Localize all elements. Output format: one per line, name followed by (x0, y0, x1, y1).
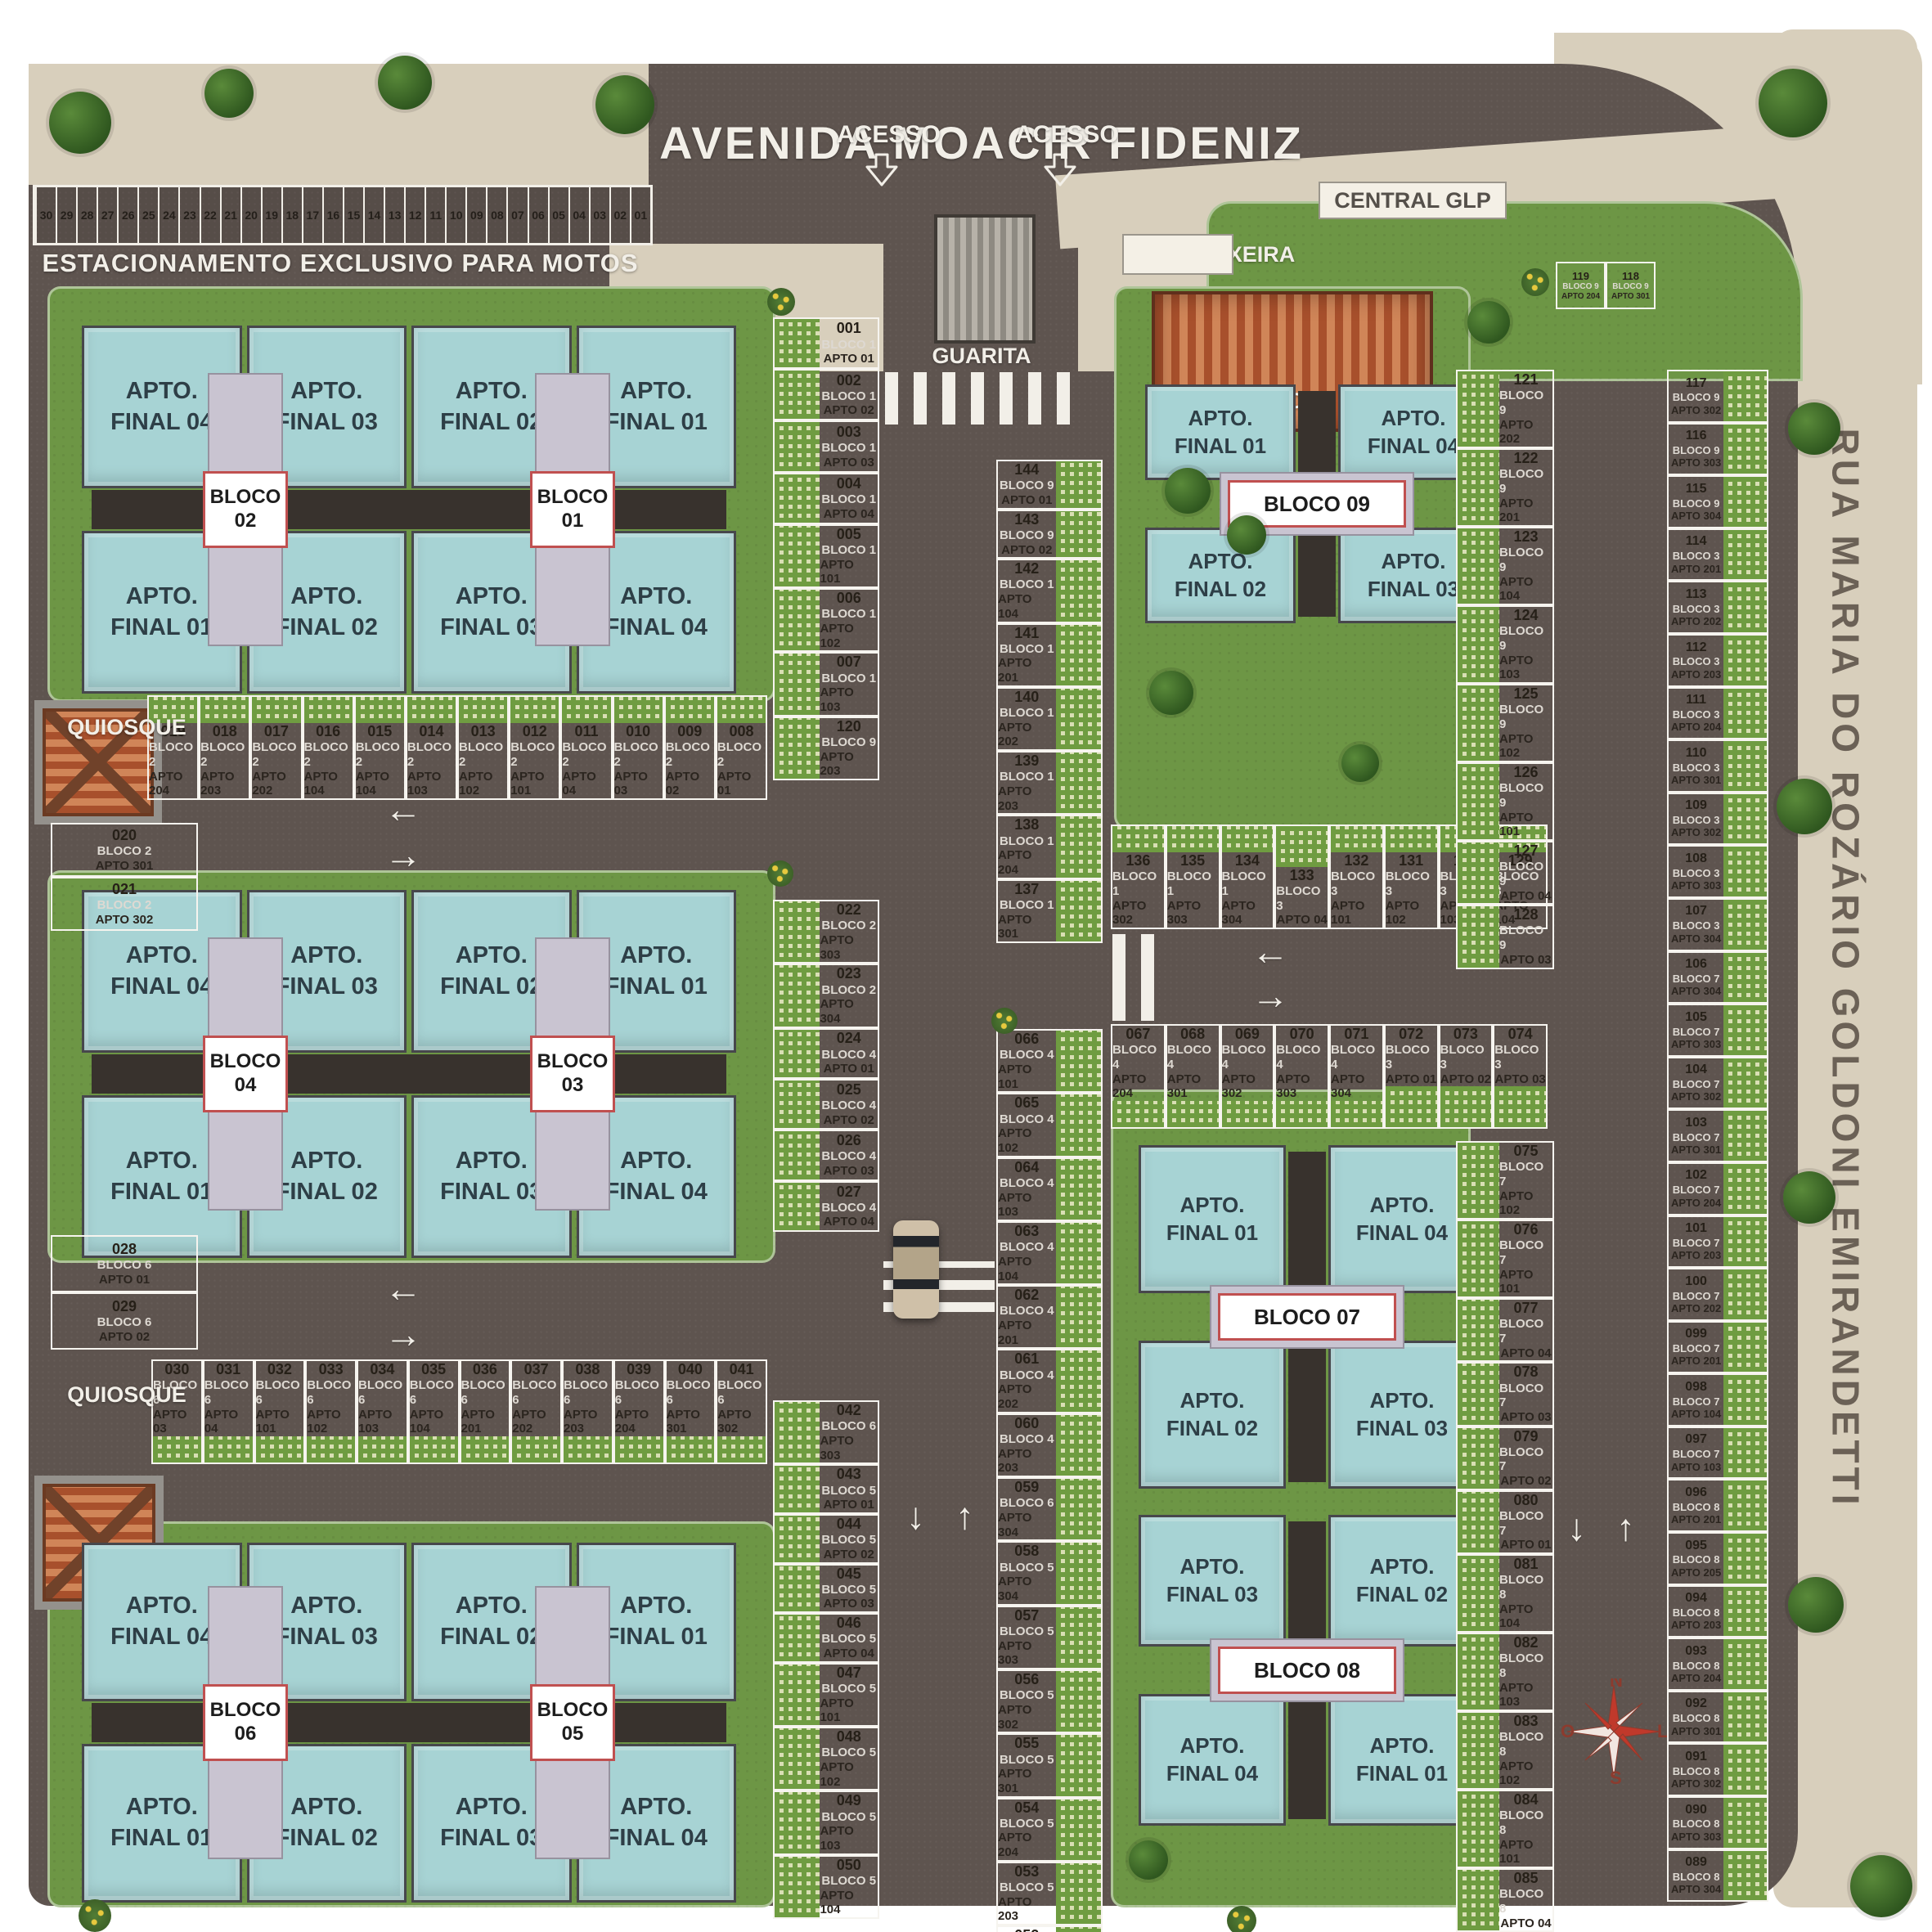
stall-bloco: BLOCO 4 (1222, 1043, 1274, 1072)
unit-line2: FINAL 03 (276, 972, 378, 1003)
parking-stall: 036BLOCO 6APTO 201 (460, 1359, 511, 1464)
stall-bloco: BLOCO 9 (821, 735, 876, 750)
stall-bloco: BLOCO 1 (821, 389, 876, 404)
flower-bush (991, 1008, 1018, 1034)
unit-line1: APTO. (1180, 1387, 1245, 1415)
unit-line1: APTO. (456, 376, 528, 407)
tree (1227, 515, 1266, 555)
moto-stall-number: 08 (491, 209, 504, 222)
parking-stall: 089BLOCO 8APTO 304 (1667, 1849, 1768, 1903)
stall-apto: APTO 302 (1671, 1090, 1721, 1103)
stall-bloco: BLOCO 2 (510, 740, 559, 769)
stall-bloco: BLOCO 5 (1000, 1817, 1054, 1831)
stall-apto: APTO 304 (1331, 1072, 1382, 1101)
stall-bloco: BLOCO 6 (410, 1378, 458, 1407)
grass-paver (615, 1436, 663, 1462)
flower-bush (767, 288, 795, 316)
parking-stall: 013BLOCO 2APTO 102 ♿ (457, 695, 509, 800)
unit-line2: FINAL 01 (605, 972, 708, 1003)
unit-line2: FINAL 01 (1175, 433, 1266, 461)
stall-bloco: BLOCO 2 (200, 740, 249, 769)
stall-bloco: BLOCO 2 (252, 740, 300, 769)
parking-col-075-088: 075BLOCO 7APTO 102 076BLOCO 7APTO 101 07… (1456, 1141, 1554, 1902)
stall-number: 028 (112, 1241, 137, 1258)
stall-number: 023 (837, 965, 861, 982)
stall-apto: APTO 202 (998, 721, 1056, 749)
stall-apto: APTO 304 (1671, 985, 1721, 997)
stall-number: 131 (1399, 852, 1423, 869)
stall-bloco: BLOCO 3 (1440, 1043, 1492, 1072)
stall-bloco: BLOCO 5 (1000, 1753, 1054, 1768)
stall-bloco: BLOCO 6 (97, 1315, 152, 1330)
stall-apto: APTO 101 (256, 1408, 304, 1436)
parking-stall: 053BLOCO 5APTO 203 (996, 1862, 1103, 1925)
parking-stall: 021BLOCO 2APTO 302 (51, 877, 198, 931)
grass-paver (459, 697, 507, 723)
grass-paver (775, 590, 820, 650)
stall-apto: APTO 101 (1499, 1838, 1552, 1867)
stall-number: 097 (1685, 1432, 1707, 1448)
tree (204, 69, 254, 118)
grass-paver (1723, 582, 1767, 632)
parking-stall: 094BLOCO 8APTO 203 (1667, 1585, 1768, 1638)
building-unit: APTO.FINAL 03 (1139, 1515, 1286, 1647)
parking-stall: 095BLOCO 8APTO 205 (1667, 1532, 1768, 1585)
stall-number: 139 (1014, 753, 1039, 770)
grass-paver (717, 697, 766, 723)
stall-bloco: BLOCO 8 (1499, 1808, 1552, 1837)
stall-bloco: BLOCO 8 (1673, 1553, 1720, 1566)
unit-line2: FINAL 03 (276, 407, 378, 438)
parking-stall: 093BLOCO 8APTO 204 (1667, 1638, 1768, 1691)
stall-bloco: BLOCO 2 (821, 983, 876, 998)
moto-stall: 06 (528, 187, 548, 243)
stall-apto: APTO 102 (820, 1760, 878, 1789)
parking-stall: 052BLOCO 5APTO 202 (996, 1925, 1103, 1932)
stall-number: 008 (729, 723, 753, 740)
stall-bloco: BLOCO 9 (1499, 546, 1552, 574)
parking-stall: 058BLOCO 5APTO 304 (996, 1541, 1103, 1605)
bloco-stair-strip: BLOCO03 (535, 937, 610, 1211)
stall-bloco: BLOCO 1 (1112, 869, 1164, 898)
parking-spots-028-029: 028BLOCO 6APTO 01 029BLOCO 6APTO 02 (51, 1235, 198, 1350)
stall-number: 136 (1126, 852, 1150, 869)
bloco-label: BLOCO 07 (1218, 1293, 1396, 1341)
stall-bloco: BLOCO 4 (1000, 1432, 1054, 1447)
stall-apto: APTO 201 (461, 1408, 510, 1436)
stall-bloco: BLOCO 5 (821, 1583, 876, 1597)
building-unit: APTO.FINAL 01 (1328, 1694, 1476, 1826)
stall-apto: APTO 103 (820, 1824, 878, 1853)
stall-number: 079 (1513, 1428, 1538, 1445)
stall-bloco: BLOCO 4 (821, 1149, 876, 1164)
stall-number: 144 (1014, 461, 1039, 479)
grass-paver (717, 1436, 766, 1462)
moto-stall-number: 17 (307, 209, 320, 222)
parking-stall: 041BLOCO 6APTO 302 (716, 1359, 767, 1464)
grass-paver (1331, 1101, 1382, 1127)
stall-number: 010 (626, 723, 650, 740)
block-group-02-01: APTO.FINAL 04APTO.FINAL 03APTO.FINAL 02A… (82, 326, 736, 694)
moto-stall-number: 18 (285, 209, 299, 222)
compass-west: O (1561, 1721, 1575, 1741)
grass-paver (1440, 1086, 1492, 1127)
stall-number: 055 (1014, 1735, 1039, 1752)
stall-number: 127 (1513, 842, 1538, 860)
lane-arrow: ← (384, 1266, 422, 1310)
stall-bloco: BLOCO 8 (1673, 1660, 1720, 1672)
stall-apto: APTO 01 (1500, 1538, 1551, 1552)
block-group-06-05: APTO.FINAL 04APTO.FINAL 03APTO.FINAL 02A… (82, 1543, 736, 1903)
moto-stall-number: 14 (368, 209, 381, 222)
stall-apto: APTO 104 (998, 592, 1056, 621)
parking-stall: 020BLOCO 2APTO 301 (51, 823, 198, 877)
parking-stall: 070BLOCO 4APTO 303 (1274, 1024, 1329, 1129)
parking-stall: 030BLOCO 6APTO 03 (151, 1359, 203, 1464)
car (893, 1220, 939, 1319)
grass-paver (564, 1436, 612, 1462)
grass-paver (1056, 1350, 1101, 1411)
stall-apto: APTO 303 (1167, 899, 1219, 928)
parking-stall: 144BLOCO 9APTO 01 ♿ (996, 460, 1103, 510)
stall-bloco: BLOCO 2 (97, 898, 152, 913)
grass-paver (775, 1131, 820, 1179)
unit-line1: APTO. (290, 582, 362, 613)
stall-bloco: BLOCO 5 (821, 1484, 876, 1498)
parking-stall: 097BLOCO 7APTO 103 (1667, 1427, 1768, 1480)
parking-stall: 131BLOCO 3APTO 102 (1384, 824, 1439, 929)
stall-bloco: BLOCO 4 (1331, 1043, 1382, 1072)
stall-number: 024 (837, 1030, 861, 1047)
stall-number: 039 (627, 1361, 651, 1378)
grass-paver (1458, 685, 1499, 761)
grass-paver (1458, 764, 1499, 839)
grass-paver (1112, 1101, 1164, 1127)
stall-apto: APTO 104 (356, 770, 404, 798)
parking-stall: 077BLOCO 7APTO 04 (1456, 1298, 1554, 1362)
stall-apto: APTO 04 (562, 770, 610, 798)
sidewalk-top-left (29, 64, 649, 185)
parking-stall: 026BLOCO 4APTO 03 (773, 1130, 879, 1180)
parking-stall: 060BLOCO 4APTO 203 (996, 1413, 1103, 1477)
grass-paver (1723, 1534, 1767, 1584)
quiosque-label-1: QUIOSQUE (25, 715, 229, 740)
stall-number: 093 (1685, 1644, 1707, 1660)
stall-number: 068 (1180, 1026, 1205, 1043)
grass-paver (775, 654, 820, 714)
parking-stall: 029BLOCO 6APTO 02 (51, 1292, 198, 1350)
stall-bloco: BLOCO 7 (1673, 1131, 1720, 1143)
stall-apto: APTO 204 (1112, 1072, 1164, 1101)
grass-paver (407, 697, 456, 723)
grass-paver (1723, 371, 1767, 421)
grass-paver (1723, 953, 1767, 1003)
grass-paver (510, 697, 559, 723)
moto-stall-number: 26 (122, 209, 135, 222)
stall-number: 014 (419, 723, 443, 740)
stall-apto: APTO 02 (1001, 543, 1052, 558)
stall-apto: APTO 204 (1671, 1672, 1721, 1684)
grass-paver (775, 1516, 820, 1562)
stall-bloco: BLOCO 7 (1499, 1317, 1552, 1346)
moto-stall-number: 16 (327, 209, 340, 222)
stall-apto: APTO 01 (1001, 493, 1052, 508)
grass-paver (1723, 1480, 1767, 1530)
stall-bloco: BLOCO 9 (1673, 444, 1720, 456)
stall-number: 058 (1014, 1543, 1039, 1560)
stall-bloco: BLOCO 6 (667, 1378, 715, 1407)
stall-bloco: BLOCO 8 (1499, 1573, 1552, 1602)
parking-stall: 047BLOCO 5APTO 101 (773, 1663, 879, 1727)
stall-apto: APTO 102 (998, 1126, 1056, 1155)
stall-apto: APTO 104 (820, 1889, 878, 1917)
unit-line1: APTO. (620, 1792, 692, 1823)
stall-number: 005 (837, 526, 861, 543)
stall-apto: APTO 201 (998, 1319, 1056, 1347)
site-plan: RUA MARIA DO ROZÁRIO GOLDONI EMIRANDETTI… (0, 0, 1932, 1932)
stall-apto: APTO 304 (998, 1575, 1056, 1603)
stall-number: 066 (1014, 1031, 1039, 1048)
stall-number: 107 (1685, 904, 1707, 919)
stall-apto: APTO 203 (1671, 1619, 1721, 1631)
grass-paver (1056, 1607, 1101, 1668)
stall-number: 026 (837, 1132, 861, 1149)
grass-paver (614, 697, 663, 723)
stall-apto: APTO 101 (1499, 811, 1552, 839)
stall-bloco: BLOCO 8 (1673, 1712, 1720, 1724)
stall-number: 027 (837, 1184, 861, 1201)
unit-line1: APTO. (1370, 1192, 1435, 1220)
building-unit: APTO.FINAL 01 (1145, 384, 1296, 480)
unit-line1: APTO. (126, 941, 198, 972)
grass-paver (775, 1615, 820, 1661)
stall-number: 099 (1685, 1327, 1707, 1342)
unit-line1: APTO. (1370, 1553, 1435, 1581)
parking-stall: 043BLOCO 5APTO 01 (773, 1464, 879, 1514)
parking-stall: 100BLOCO 7APTO 202 (1667, 1268, 1768, 1321)
stall-number: 078 (1513, 1364, 1538, 1381)
stall-number: 072 (1399, 1026, 1423, 1043)
moto-stall: 11 (425, 187, 445, 243)
grass-paver (1056, 1415, 1101, 1476)
stall-bloco: BLOCO 5 (1000, 1624, 1054, 1639)
grass-paver (1723, 1058, 1767, 1108)
grass-paver (1723, 1269, 1767, 1319)
parking-stall: 024BLOCO 4APTO 01 (773, 1028, 879, 1079)
moto-stall-number: 01 (635, 209, 648, 222)
tree (1759, 69, 1827, 137)
parking-stall: 038BLOCO 6APTO 203 (562, 1359, 613, 1464)
stall-apto: APTO 304 (998, 1511, 1056, 1539)
stall-apto: APTO 302 (1671, 826, 1721, 838)
unit-line1: APTO. (620, 582, 692, 613)
stall-bloco: BLOCO 1 (1000, 898, 1054, 913)
stall-bloco: BLOCO 2 (356, 740, 404, 769)
moto-stall-number: 12 (409, 209, 422, 222)
moto-stall: 14 (363, 187, 384, 243)
stall-bloco: BLOCO 9 (1612, 282, 1648, 292)
grass-paver (461, 1436, 510, 1462)
parking-stall: 005BLOCO 1APTO 101 ♿ (773, 524, 879, 588)
stall-bloco: BLOCO 4 (1000, 1112, 1054, 1127)
unit-line2: FINAL 04 (1368, 433, 1459, 461)
stall-number: 080 (1513, 1492, 1538, 1509)
parking-stall: 050BLOCO 5APTO 104 (773, 1855, 879, 1919)
stall-bloco: BLOCO 9 (1499, 389, 1552, 417)
stall-bloco: BLOCO 5 (821, 1746, 876, 1760)
parking-stall: 055BLOCO 5APTO 301 (996, 1733, 1103, 1797)
stall-number: 017 (264, 723, 289, 740)
stall-number: 022 (837, 901, 861, 919)
parking-stall: 001BLOCO 1APTO 01 ♿ (773, 317, 879, 369)
unit-line2: FINAL 02 (1175, 576, 1266, 604)
moto-stall-number: 11 (429, 209, 442, 222)
parking-stall: 014BLOCO 2APTO 103 ♿ (406, 695, 457, 800)
unit-line1: APTO. (1188, 405, 1253, 433)
tree (1777, 779, 1832, 834)
stall-apto: APTO 201 (1671, 1513, 1721, 1525)
parking-col-022-027: 022BLOCO 2APTO 303 023BLOCO 2APTO 304 02… (773, 900, 879, 1232)
parking-stall: 125BLOCO 9APTO 102 (1456, 684, 1554, 762)
parking-stall: 003BLOCO 1APTO 03 ♿ (773, 420, 879, 472)
stall-apto: APTO 103 (1499, 1681, 1552, 1710)
unit-line1: APTO. (126, 376, 198, 407)
unit-line1: APTO. (126, 582, 198, 613)
stall-number: 035 (421, 1361, 446, 1378)
grass-paver (1723, 1798, 1767, 1848)
stall-bloco: BLOCO 6 (358, 1378, 407, 1407)
grass-paver (775, 1183, 820, 1230)
stall-apto: APTO 301 (998, 913, 1056, 941)
parking-spots-119-118: 119BLOCO 9APTO 204 118BLOCO 9APTO 301 (1556, 262, 1656, 309)
grass-paver (1056, 1094, 1101, 1155)
grass-paver (1723, 1692, 1767, 1742)
stall-number: 105 (1685, 1010, 1707, 1026)
unit-line2: FINAL 03 (1166, 1581, 1258, 1609)
stall-bloco: BLOCO 2 (821, 919, 876, 933)
bloco-stair-strip: BLOCO02 (208, 373, 283, 646)
stall-number: 006 (837, 590, 861, 607)
grass-paver (1723, 1005, 1767, 1055)
unit-line2: FINAL 01 (1166, 1220, 1258, 1247)
parking-stall: 009BLOCO 2APTO 02 ♿ (664, 695, 716, 800)
parking-stall: 083BLOCO 8APTO 102 (1456, 1711, 1554, 1790)
parking-stall: 018BLOCO 2APTO 203 ♿ (199, 695, 250, 800)
moto-stall: 26 (117, 187, 137, 243)
parking-stall: 117BLOCO 9APTO 302 (1667, 370, 1768, 423)
stall-number: 104 (1685, 1063, 1707, 1078)
stall-bloco: BLOCO 2 (459, 740, 507, 769)
grass-paver (1056, 1799, 1101, 1860)
grass-paver (775, 718, 820, 779)
trash-shed (1122, 234, 1233, 275)
moto-stall-number: 07 (511, 209, 524, 222)
lane-arrow: ↓ (1567, 1505, 1586, 1549)
moto-stall: 04 (568, 187, 589, 243)
stall-number: 050 (837, 1857, 861, 1874)
stall-number: 118 (1622, 270, 1639, 282)
stall-number: 092 (1685, 1696, 1707, 1712)
parking-stall: 101BLOCO 7APTO 203 (1667, 1215, 1768, 1269)
stall-number: 126 (1513, 764, 1538, 781)
stall-number: 037 (524, 1361, 549, 1378)
stall-bloco: BLOCO 2 (666, 740, 714, 769)
stall-bloco: BLOCO 9 (1499, 703, 1552, 731)
grass-paver (153, 1436, 201, 1462)
parking-stall: 039BLOCO 6APTO 204 (613, 1359, 665, 1464)
stall-bloco: BLOCO 7 (1499, 1160, 1552, 1188)
stall-number: 044 (837, 1516, 861, 1533)
stall-apto: APTO 204 (998, 848, 1056, 877)
stall-apto: APTO 203 (998, 1447, 1056, 1476)
stall-apto: APTO 203 (820, 750, 878, 779)
stall-bloco: BLOCO 5 (1000, 1880, 1054, 1895)
stall-bloco: BLOCO 3 (1673, 867, 1720, 879)
grass-paver (667, 1436, 715, 1462)
parking-stall: 080BLOCO 7APTO 01 (1456, 1490, 1554, 1554)
moto-stall: 05 (548, 187, 568, 243)
grass-paver (304, 697, 353, 723)
tree (1165, 468, 1211, 514)
block-units: APTO.FINAL 04APTO.FINAL 03APTO.FINAL 02A… (82, 890, 736, 1258)
stall-number: 016 (316, 723, 340, 740)
parking-stall: 019BLOCO 2APTO 204 ♿ (147, 695, 199, 800)
parking-stall: 107BLOCO 3APTO 304 (1667, 898, 1768, 951)
grass-paver (1458, 906, 1499, 967)
stall-number: 125 (1513, 685, 1538, 703)
stall-apto: APTO 102 (820, 622, 878, 650)
grass-paver (1723, 689, 1767, 739)
stall-bloco: BLOCO 3 (1673, 603, 1720, 615)
parking-stall: 072BLOCO 3APTO 01 (1384, 1024, 1439, 1129)
stall-apto: APTO 103 (1671, 1461, 1721, 1473)
parking-stall: 061BLOCO 4APTO 202 (996, 1349, 1103, 1413)
grass-paver (1458, 1713, 1499, 1788)
stall-number: 115 (1686, 482, 1707, 497)
stall-apto: APTO 04 (1277, 913, 1328, 928)
stall-bloco: BLOCO 1 (821, 607, 876, 622)
grass-paver (775, 1665, 820, 1725)
moto-stall: 22 (200, 187, 220, 243)
lane-arrow: ↑ (1616, 1505, 1635, 1549)
stall-apto: APTO 302 (96, 913, 154, 928)
grass-paver (1056, 1479, 1101, 1539)
stall-apto: APTO 102 (1499, 1759, 1552, 1788)
compass-rose: N L S O (1561, 1678, 1667, 1785)
stall-number: 101 (1685, 1221, 1707, 1237)
building-unit: APTO.FINAL 01 (1139, 1145, 1286, 1293)
parking-stall: 109BLOCO 3APTO 302 (1667, 793, 1768, 846)
grass-paver (1458, 1556, 1499, 1631)
quiosque-label-2: QUIOSQUE (25, 1382, 229, 1408)
moto-stall: 01 (630, 187, 650, 243)
parking-stall: 028BLOCO 6APTO 01 (51, 1235, 198, 1292)
stall-bloco: BLOCO 6 (717, 1378, 766, 1407)
stall-bloco: BLOCO 9 (1499, 781, 1552, 810)
stall-number: 090 (1685, 1803, 1707, 1818)
unit-line1: APTO. (1180, 1192, 1245, 1220)
parking-stall: 084BLOCO 8APTO 101 (1456, 1790, 1554, 1868)
parking-stall: 023BLOCO 2APTO 304 (773, 964, 879, 1027)
stall-apto: APTO 102 (1499, 732, 1552, 761)
grass-paver (1056, 625, 1101, 685)
stall-number: 041 (730, 1361, 754, 1378)
grass-paver (775, 1030, 820, 1077)
stall-bloco: BLOCO 7 (1673, 1026, 1720, 1038)
parking-row-top: 019BLOCO 2APTO 204 ♿ 018BLOCO 2APTO 203 … (147, 695, 767, 800)
grass-paver (1386, 826, 1437, 852)
stall-apto: APTO 202 (1671, 615, 1721, 627)
